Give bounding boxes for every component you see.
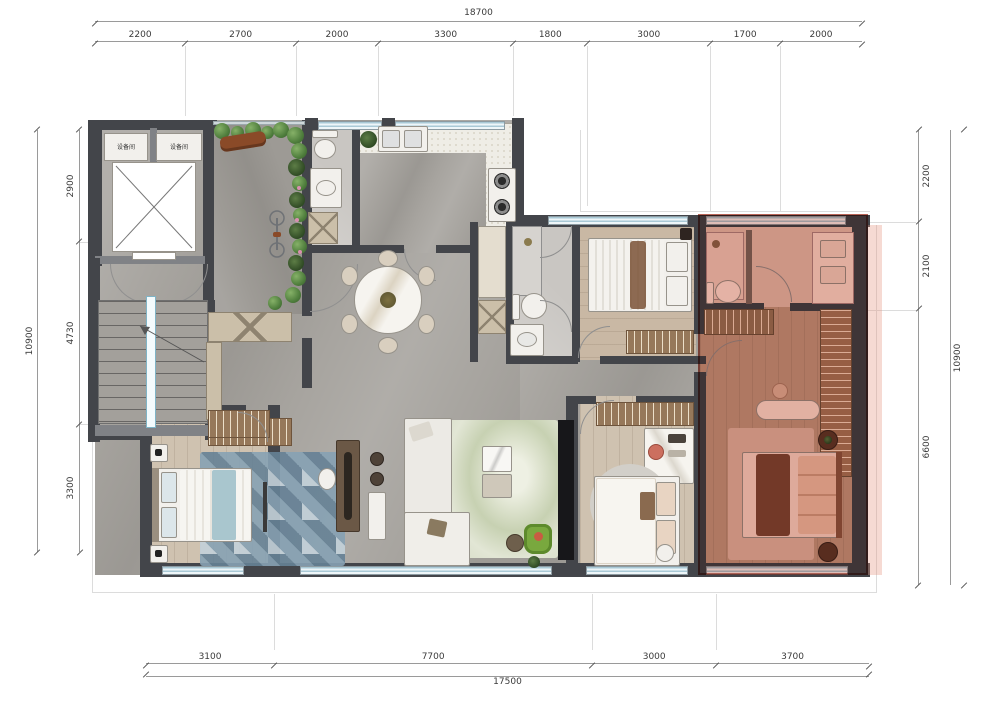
dining-chair (341, 266, 358, 286)
stove-burner-2 (494, 199, 510, 215)
hall-toilet-tank (512, 294, 520, 320)
corridor-cabinet-lower (478, 300, 506, 334)
coffee-table (482, 446, 512, 472)
dim-total-bottom: 17500 (146, 676, 869, 690)
bedroom1-tv (263, 482, 267, 532)
wall-lobby-garden (203, 120, 214, 316)
window-bedroom3-bottom (586, 566, 688, 575)
tv-wall-strip (558, 420, 574, 560)
wall-laundry-kitchen (352, 125, 360, 249)
extension-line (716, 594, 717, 650)
dim-row-bottom: 3100770030003700 (146, 650, 869, 664)
garden-plant (288, 159, 305, 176)
stair-direction-arrow (98, 296, 214, 428)
hall-vanity-basin (517, 332, 537, 347)
coffee-table-2 (482, 474, 512, 498)
dim-row-left: 290047303300 (66, 130, 80, 552)
dining-chair (418, 314, 435, 334)
kitchen-plant (360, 131, 377, 148)
bedroom1-pillow (161, 472, 177, 503)
bedroom2-pillow (666, 276, 688, 306)
floor-plan-canvas: 18700 22002700200033001800300017002000 3… (0, 0, 990, 707)
bedroom2-pillow (666, 242, 688, 272)
laundry-toilet-tank (312, 130, 338, 138)
garden-flower (298, 250, 302, 254)
desk-runner (344, 452, 352, 520)
equipment-room-1-label: 设备间 (105, 145, 147, 151)
garden-flower (295, 218, 299, 222)
extension-line (592, 594, 593, 650)
wall-perimeter-left-lobby (88, 120, 102, 266)
setback-line (92, 592, 876, 593)
extension-line (513, 46, 514, 116)
setback-line (92, 440, 93, 592)
wall-foyer-left (302, 338, 312, 388)
bedroom1-blue-throw (212, 470, 236, 540)
extension-line (710, 46, 711, 211)
side-table (506, 534, 524, 552)
wall-bath-right (572, 222, 580, 362)
living-plant (528, 556, 540, 568)
garden-plant (285, 287, 301, 303)
equipment-room-1: 设备间 (104, 133, 148, 161)
garden-flower (297, 186, 301, 190)
bicycle-icon (262, 208, 292, 264)
bedroom3-pillow (656, 482, 676, 516)
bedroom2-duvet (590, 240, 664, 310)
extension-line (868, 222, 916, 223)
wall-bedroom3-top-a (576, 396, 596, 404)
wall-bath-bottom (506, 356, 578, 364)
garden-plant (289, 192, 305, 208)
shower-head (524, 238, 532, 246)
setback-line (580, 211, 870, 212)
kitchen-floor-inner (356, 153, 486, 253)
kitchen-sink-basin-right (404, 130, 422, 148)
master-suite-highlight-glow (868, 225, 882, 575)
dim-total-top: 18700 (95, 8, 862, 22)
dining-chair (418, 266, 435, 286)
bedroom3-accent-pillow (640, 492, 655, 520)
dining-chair (341, 314, 358, 334)
dim-total-right: 10900 (950, 130, 964, 585)
extension-line (296, 46, 297, 116)
dining-chair (378, 337, 398, 354)
garden-plant (291, 143, 307, 159)
bedroom2-wardrobe (626, 330, 694, 354)
wall-corridor-left (470, 222, 478, 362)
kitchen-sink-basin-left (382, 130, 400, 148)
dim-row-top: 22002700200033001800300017002000 (95, 28, 862, 42)
shower-stall (512, 226, 542, 296)
bedroom1-headboard (152, 468, 159, 542)
corridor-cabinet (478, 226, 506, 298)
extension-line (378, 46, 379, 116)
side-stool (370, 472, 384, 486)
setback-line (580, 130, 581, 212)
bedroom1-lamp (155, 550, 162, 557)
equipment-room-2-label: 设备间 (157, 145, 201, 151)
equipment-room-2: 设备间 (156, 133, 202, 161)
garden-plant (268, 296, 282, 310)
master-suite-highlight (698, 214, 868, 575)
bedroom3-chair (648, 444, 664, 460)
foyer-cabinet-upper (208, 312, 292, 342)
elevator-shaft (112, 162, 196, 252)
bedroom2-speaker (680, 228, 692, 240)
stove-burner-1 (494, 173, 510, 189)
dim-row-right: 220021006600 (918, 130, 932, 585)
dim-total-left: 10900 (24, 130, 38, 552)
garden-plant (291, 271, 306, 286)
garden-plant (287, 127, 304, 144)
dining-centerpiece (380, 292, 396, 308)
bedroom2-throw (630, 241, 646, 309)
extension-line (587, 46, 588, 206)
extension-line (780, 46, 781, 211)
desk-chair (318, 468, 336, 490)
armchair-cushion (534, 532, 543, 541)
bedroom3-duvet (596, 478, 656, 564)
bedroom3-desk-items (668, 434, 686, 443)
laundry-cabinet (308, 212, 338, 244)
window-living-bottom (300, 566, 552, 575)
laundry-sink-basin (316, 180, 336, 196)
dining-chair (378, 250, 398, 267)
wall-bedroom2-bottom (600, 356, 706, 364)
sofa-cushion (427, 518, 448, 537)
laundry-toilet-bowl (314, 139, 336, 159)
window-bedroom2-top (548, 216, 688, 225)
extension-line (274, 594, 275, 650)
elevator-door (132, 252, 176, 260)
elevator-x-icon (112, 162, 196, 252)
bedroom3-stool (656, 544, 674, 562)
window-bedroom1-bottom (162, 566, 244, 575)
side-stool (370, 452, 384, 466)
console-bench (368, 492, 386, 540)
bedroom1-pillow (161, 507, 177, 538)
foyer-cabinet-side (206, 342, 222, 420)
bedroom3-desk-items-2 (668, 450, 686, 457)
bedroom1-lamp (155, 449, 162, 456)
extension-line (185, 46, 186, 116)
window-laundry-top (318, 121, 382, 130)
